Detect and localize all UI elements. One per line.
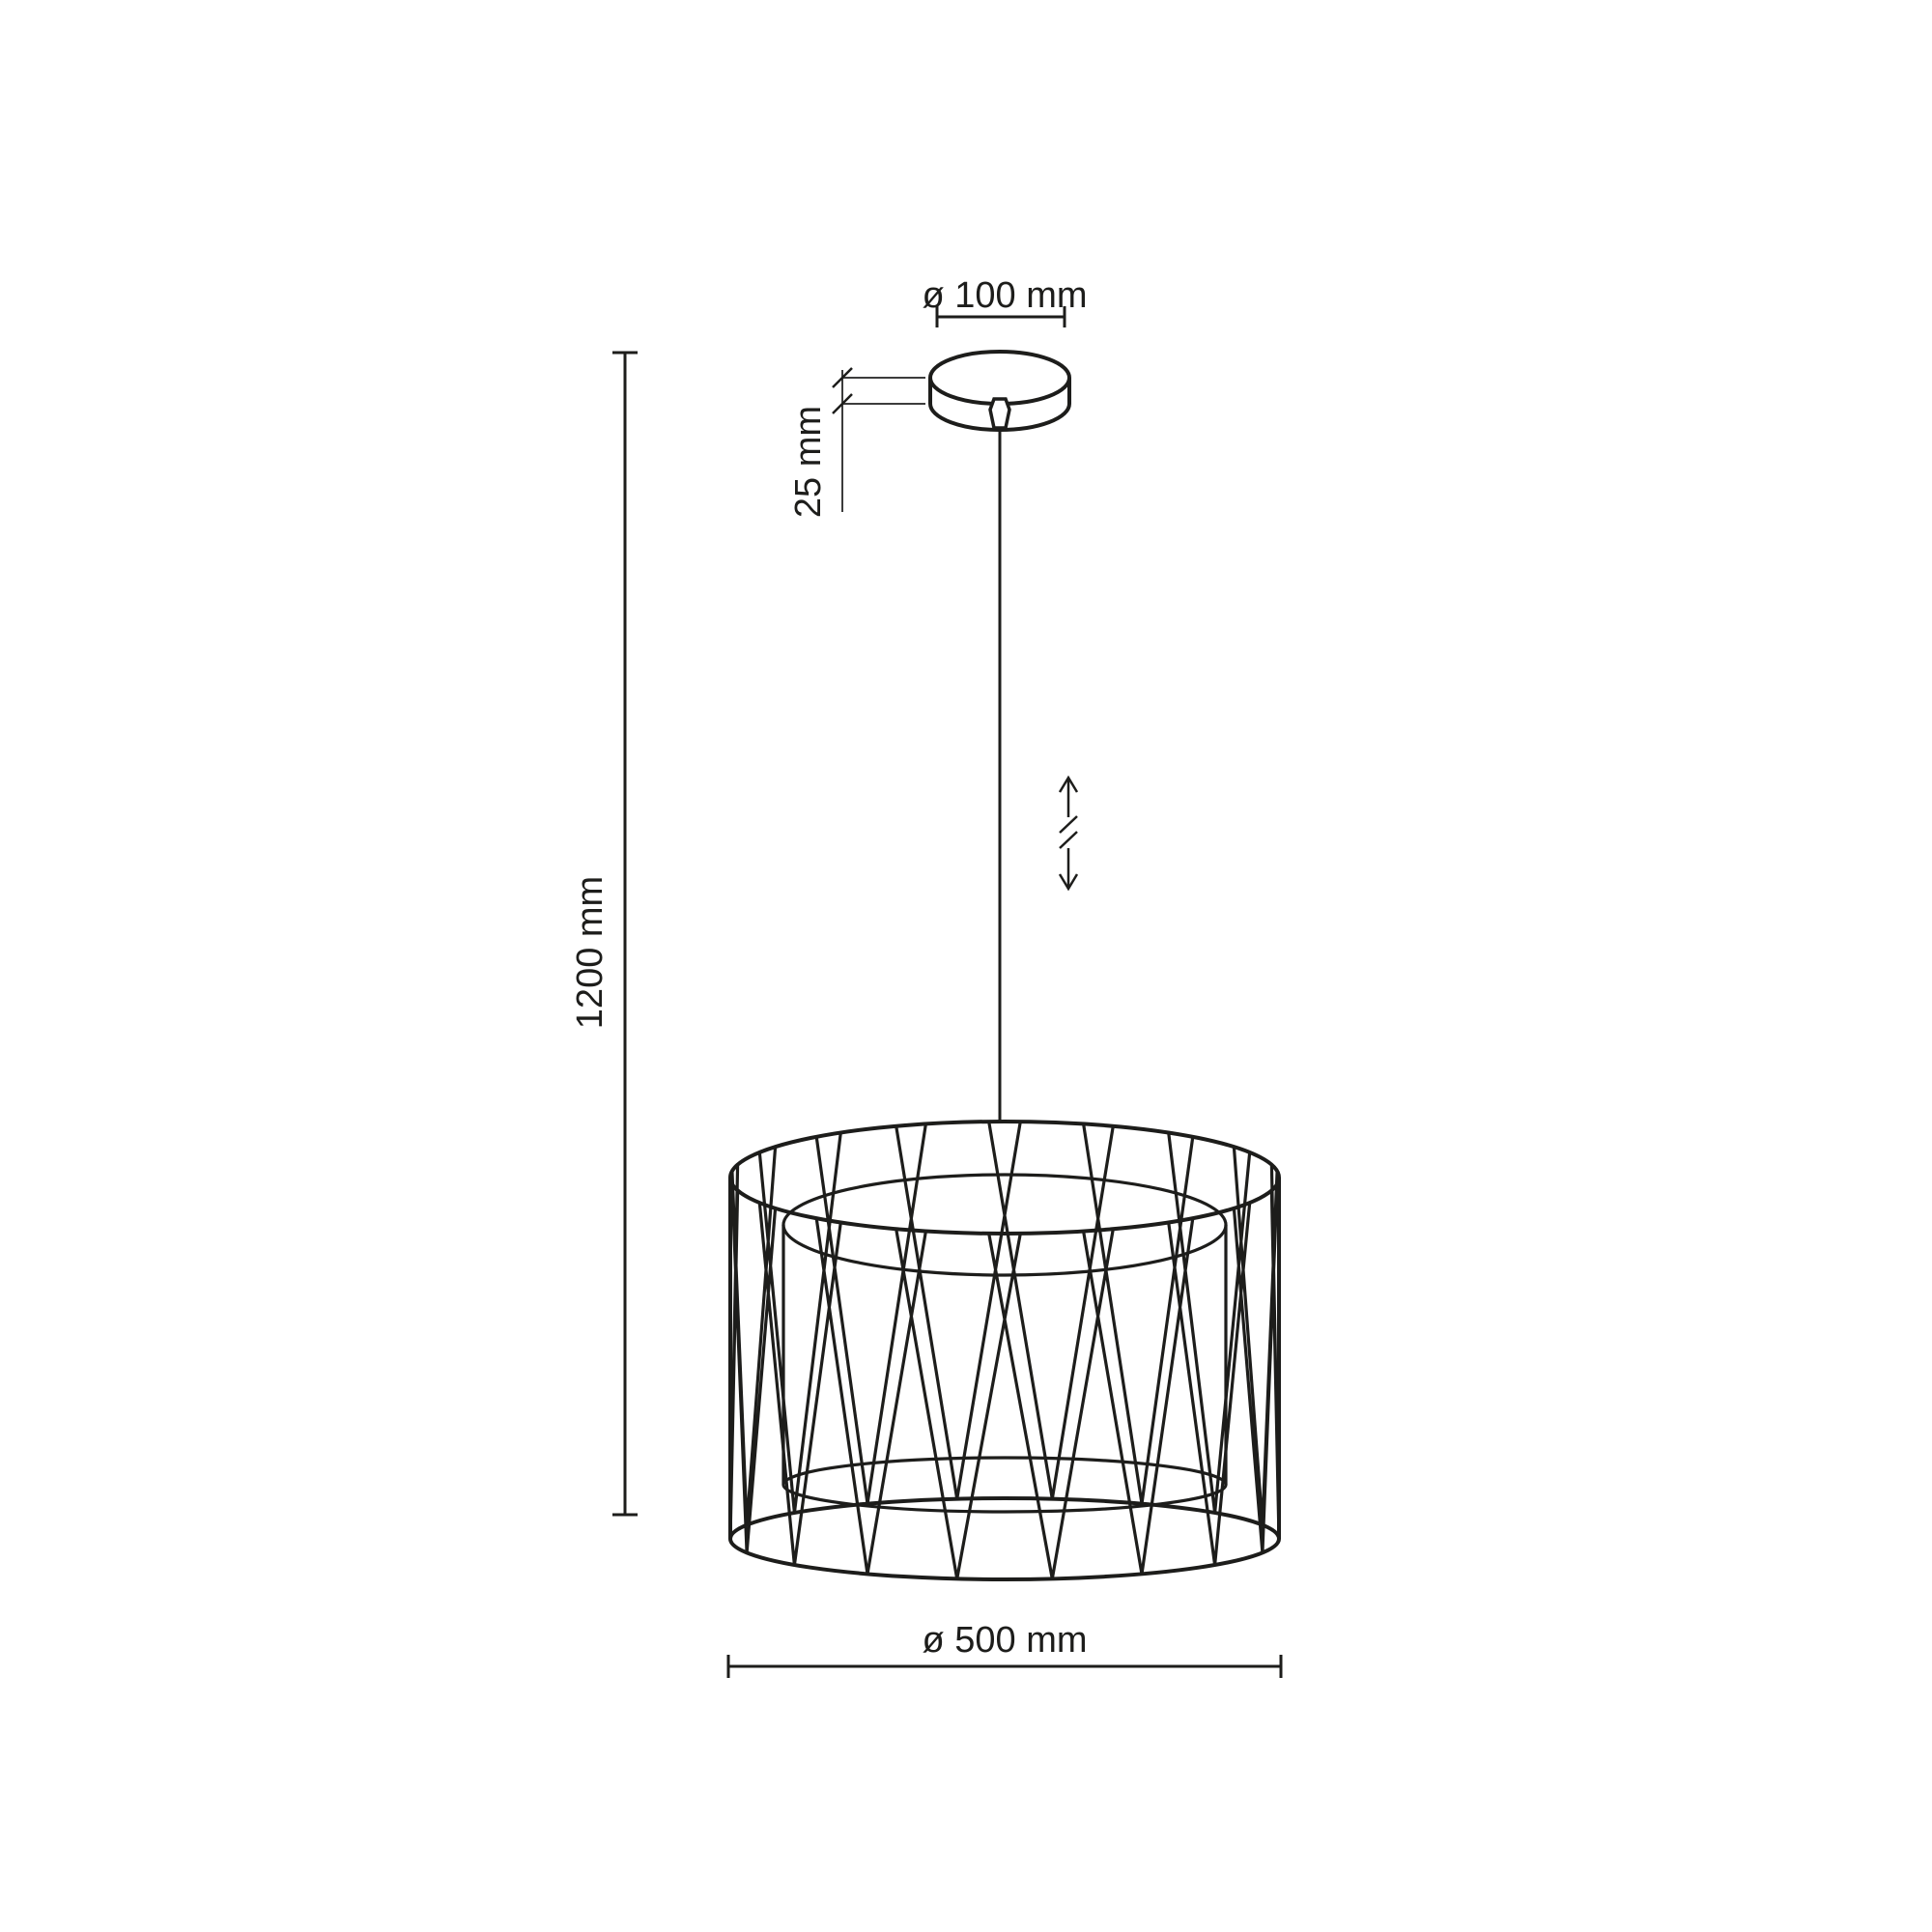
canopy-height-label: 25 mm [789, 384, 828, 539]
cord-grip [990, 399, 1009, 428]
shade-drawing [730, 1122, 1279, 1579]
canopy-diameter-label: ø 100 mm [908, 276, 1101, 315]
overall-height-dimension-line [612, 353, 638, 1515]
diagram-canvas: ø 100 mm 25 mm 1200 mm ø 500 mm [0, 0, 1932, 1932]
shade-diameter-label: ø 500 mm [908, 1621, 1101, 1660]
height-adjust-arrows-icon [1060, 778, 1077, 889]
overall-height-label: 1200 mm [571, 856, 610, 1049]
canopy-height-dimension-line [833, 368, 925, 512]
